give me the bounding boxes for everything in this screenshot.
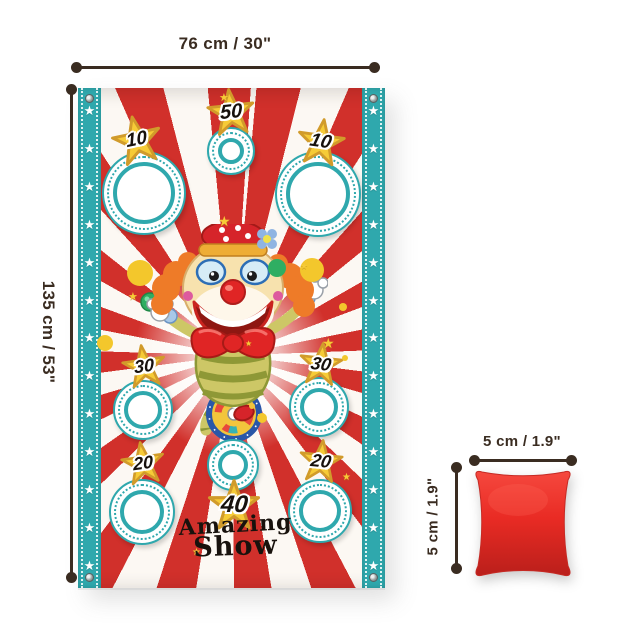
border-star-icon: ★	[84, 104, 96, 117]
border-star-icon: ★	[368, 369, 380, 382]
score-star: 30	[119, 341, 169, 391]
score-star: 10	[107, 110, 166, 169]
border-star-icon: ★	[84, 256, 96, 269]
bag-height-label: 5 cm / 1.9"	[425, 457, 442, 577]
confetti-dot	[339, 303, 347, 311]
score-value: 20	[133, 451, 154, 475]
grommet-icon	[85, 573, 94, 582]
border-star-icon: ★	[368, 104, 380, 117]
border-star-icon: ★	[368, 256, 380, 269]
confetti-star-icon: ★	[128, 292, 138, 303]
bag-height-line	[455, 467, 458, 568]
confetti-star-icon: ★	[342, 473, 351, 483]
border-star-icon: ★	[368, 294, 380, 307]
banner-title-line2: Show	[148, 528, 324, 565]
score-value: 30	[309, 353, 333, 376]
border-star-icon: ★	[84, 559, 96, 572]
border-star-icon: ★	[368, 407, 380, 420]
dimension-endpoint-dot	[566, 455, 577, 466]
dimension-endpoint-dot	[66, 572, 77, 583]
border-star-icon: ★	[368, 559, 380, 572]
confetti-star-icon: ★	[300, 262, 308, 271]
grommet-icon	[369, 94, 378, 103]
border-star-icon: ★	[368, 331, 380, 344]
score-star: 20	[297, 437, 345, 485]
border-star-icon: ★	[368, 445, 380, 458]
score-star: 50	[205, 88, 258, 138]
bag-width-label: 5 cm / 1.9"	[452, 433, 592, 450]
confetti-dot	[257, 413, 267, 423]
border-star-icon: ★	[84, 483, 96, 496]
border-star-icon: ★	[84, 180, 96, 193]
dimension-endpoint-dot	[71, 62, 82, 73]
border-star-icon: ★	[84, 369, 96, 382]
confetti-star-icon: ★	[218, 214, 231, 228]
confetti-dot	[97, 335, 113, 351]
banner-height-line	[70, 88, 73, 577]
border-star-icon: ★	[84, 294, 96, 307]
dimension-endpoint-dot	[451, 462, 462, 473]
banner-title: Amazing Show	[148, 512, 323, 562]
bean-bag-illustration	[468, 466, 578, 580]
border-star-icon: ★	[368, 521, 380, 534]
score-value: 10	[125, 127, 148, 153]
confetti-dot	[342, 355, 348, 361]
dimension-endpoint-dot	[469, 455, 480, 466]
border-star-icon: ★	[368, 218, 380, 231]
border-star-icon: ★	[368, 483, 380, 496]
target-hole	[113, 380, 173, 440]
score-star: 10	[294, 115, 348, 169]
dimension-endpoint-dot	[451, 563, 462, 574]
border-star-icon: ★	[84, 445, 96, 458]
dimension-endpoint-dot	[369, 62, 380, 73]
grommet-icon	[85, 94, 94, 103]
confetti-star-icon: ★	[245, 340, 252, 348]
border-star-icon: ★	[84, 142, 96, 155]
confetti-star-icon: ★	[322, 336, 335, 350]
border-star-icon: ★	[368, 180, 380, 193]
score-value: 20	[309, 450, 333, 473]
bag-width-line	[474, 459, 571, 462]
border-star-icon: ★	[84, 331, 96, 344]
border-strip-right: ★★★★★★★★★★★★★	[362, 88, 385, 588]
confetti-dot	[127, 260, 153, 286]
border-star-icon: ★	[84, 218, 96, 231]
score-value: 30	[134, 354, 155, 378]
border-star-icon: ★	[368, 142, 380, 155]
border-star-icon: ★	[84, 407, 96, 420]
dimension-endpoint-dot	[66, 84, 77, 95]
score-star: 20	[118, 438, 168, 488]
toss-game-banner: ★★★★★★★★★★★★★ ★★★★★★★★★★★★★ 105010303020…	[78, 88, 385, 588]
banner-width-line	[76, 66, 374, 69]
banner-height-label: 135 cm / 53"	[38, 262, 58, 402]
score-star: 30	[297, 340, 345, 388]
grommet-icon	[369, 573, 378, 582]
confetti-star-icon: ★	[219, 93, 229, 104]
banner-width-label: 76 cm / 30"	[125, 34, 325, 54]
product-image: 76 cm / 30" 135 cm / 53"	[0, 0, 630, 630]
border-star-icon: ★	[84, 521, 96, 534]
confetti-dot	[268, 259, 286, 277]
